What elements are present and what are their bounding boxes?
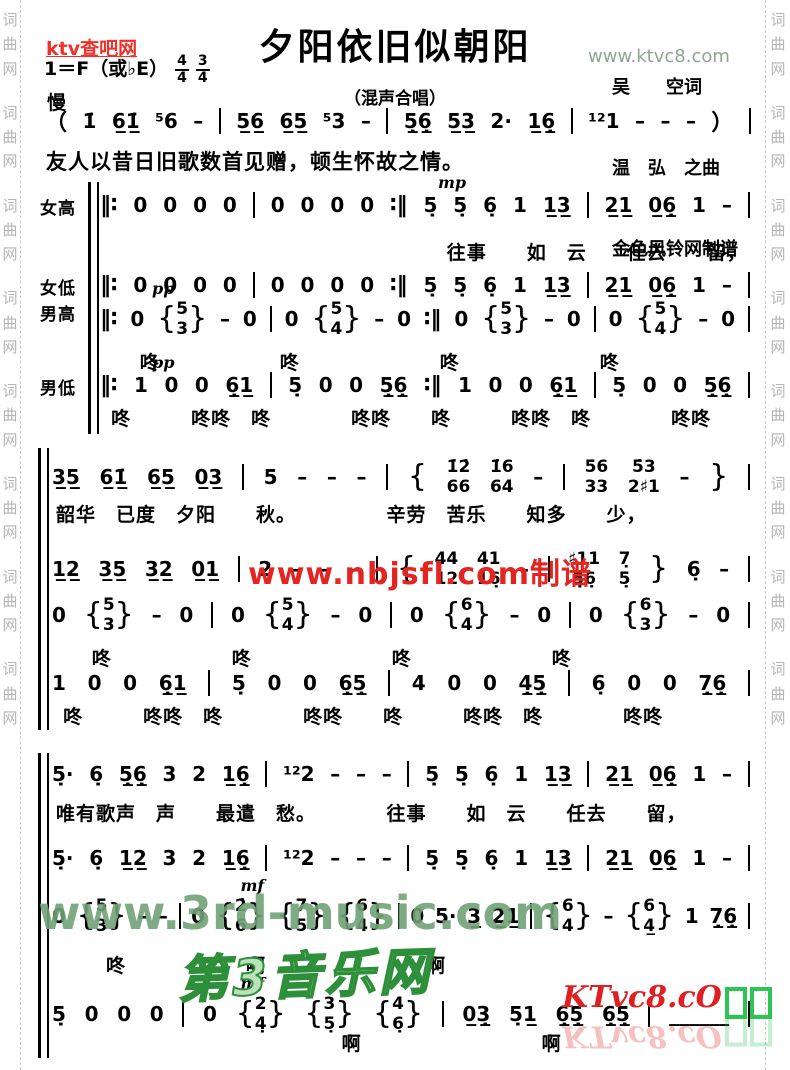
strip-char: 词 [770, 567, 785, 587]
note: 0 [488, 373, 502, 397]
note: 2 [192, 762, 206, 786]
note: 1 [692, 846, 706, 870]
note: 5̣ [423, 273, 437, 297]
note: – [158, 904, 168, 928]
note: 6̣ [485, 762, 499, 786]
note: – [603, 904, 613, 928]
barline [648, 1001, 650, 1027]
barline [748, 1001, 750, 1027]
barline [211, 602, 213, 628]
divisi-brace: } [709, 462, 728, 492]
dynamic-mark: pp [152, 279, 174, 298]
note: 4 [412, 671, 426, 695]
note: 5̣· [52, 846, 74, 870]
note: 0 [360, 273, 374, 297]
barline [587, 272, 589, 298]
note: 2̲1̲ [605, 846, 633, 870]
notes-line: 5̣·6̣5̲̣6̲̣321̲6̲̣¹²2–––5̣5̣6̣11̲3̲2̲1̲0… [52, 759, 750, 789]
note: 0 [231, 603, 245, 627]
note: 0 [673, 373, 687, 397]
note: 3 [162, 846, 176, 870]
note: – [319, 557, 329, 581]
note: 2̲1̲ [605, 273, 633, 297]
music-system: 3̲5̲6̲1̲̇6̲5̲0̲3̲5–––{1̇2̇661̇664–56335̇… [38, 448, 752, 730]
note: 6̣ [483, 273, 497, 297]
lyrics-line: 啊 啊 [56, 1029, 750, 1056]
note: – [356, 846, 366, 870]
barline [748, 602, 750, 628]
sheet-music-page: 词曲网词曲网词曲网词曲网词曲网词曲网词曲网词曲网 词曲网词曲网词曲网词曲网词曲网… [0, 0, 790, 1070]
barline [407, 845, 409, 871]
strip-char: 曲 [2, 313, 17, 333]
chord-stack: {64} [543, 896, 593, 937]
strip-char: 词 [2, 474, 17, 494]
lyrics-line: 咚 啊 啊 [56, 951, 750, 978]
barline [594, 306, 596, 332]
note: 2̲1̲ [492, 904, 520, 928]
note: ¹²1 [588, 109, 619, 133]
note: 5̲̣6̲̣ [404, 109, 432, 133]
strip-char: 曲 [770, 498, 785, 518]
note: 0 [358, 603, 372, 627]
note: 5̣ [288, 373, 302, 397]
note: – [291, 557, 301, 581]
note: – [297, 465, 307, 489]
chord-stack: {64} [337, 896, 387, 937]
barline [208, 670, 210, 696]
note: 6̲̣1̲ [159, 671, 187, 695]
note: – [374, 307, 384, 331]
note: 0 [360, 193, 374, 217]
chord-stack: {53} [157, 299, 207, 340]
barline [571, 108, 573, 134]
note: – [220, 307, 230, 331]
note: – [509, 603, 519, 627]
strip-char: 网 [2, 151, 17, 171]
strip-char: 词 [2, 567, 17, 587]
chord-stack: 1̇664 [490, 457, 514, 498]
note: 1 [513, 193, 527, 217]
note: 2 [258, 557, 272, 581]
note: 5̣ [425, 846, 439, 870]
note: 6̲̣5̲̣ [339, 671, 367, 695]
note: 3 [162, 762, 176, 786]
barline [270, 372, 272, 398]
note: 1 [692, 273, 706, 297]
note: 0 [643, 373, 657, 397]
note: 6̲5̲ [279, 109, 307, 133]
note: 0 [271, 193, 285, 217]
note: 7̲̣6̲̣ [709, 904, 737, 928]
strip-char: 网 [2, 522, 17, 542]
barline [530, 903, 532, 929]
note: 6̲̣1̲ [225, 373, 253, 397]
note: – [722, 846, 732, 870]
barline [265, 845, 267, 871]
note: 0 [191, 904, 205, 928]
strip-char: 词 [2, 659, 17, 679]
chord-stack: {75} [276, 896, 326, 937]
barline [386, 108, 388, 134]
note: 1̲3̲ [544, 762, 572, 786]
barline [219, 108, 221, 134]
barline [748, 556, 750, 582]
strip-char: 曲 [770, 591, 785, 611]
note: 0 [303, 671, 317, 695]
note: 0̲1̲ [191, 557, 219, 581]
note: 5̲3̲ [447, 109, 475, 133]
note: 0 [130, 307, 144, 331]
note: 6̲1̲̇ [100, 465, 128, 489]
voice-label: 女低 [40, 274, 84, 299]
barline [568, 670, 570, 696]
note: 0 [609, 307, 623, 331]
barline [587, 845, 589, 871]
note: – [519, 557, 529, 581]
barline [569, 602, 571, 628]
barline [253, 272, 255, 298]
strip-char: 网 [2, 430, 17, 450]
repeat-barline: ∶‖ [390, 273, 407, 298]
voice-label: 男低 [40, 374, 84, 399]
notes-line: 1006̲̣1̲5̣006̲̣5̲̣4004̲̣5̲̣6̣007̲̣6̲̣ [52, 668, 750, 698]
lyrics-line: 咚 咚 咚 咚 [56, 644, 750, 671]
note: 5̣1̲ [509, 1002, 537, 1026]
note: 3̲5̲ [98, 557, 126, 581]
barline [748, 192, 750, 218]
barline [748, 306, 750, 332]
intro-notes-line: （1̇6̲1̲̇⁵6–5̲6̲6̲5̲⁵3–5̲̣6̲̣5̲3̲2·1̲6̲̣¹… [45, 106, 751, 136]
chord-stack: 5633 [585, 457, 609, 498]
note: 0 [179, 603, 193, 627]
barline [748, 272, 750, 298]
note: 5̣ [232, 671, 246, 695]
chord-stack: {63} [621, 595, 671, 636]
repeat-barline: ∶‖ [424, 307, 441, 332]
barline [238, 556, 240, 582]
notes-line: 1̲2̲3̲5̲3̲2̲0̲1̲2–––{44124116̣–♯115̣6̣7̣… [52, 546, 750, 592]
note: 0 [52, 904, 66, 928]
note: 0 [567, 307, 581, 331]
note: 0 [150, 1002, 164, 1026]
note: 6̣ [89, 846, 103, 870]
notes-line: ‖∶00000000∶‖5̣5̣6̣11̲3̲2̲1̲0̲6̲̣1–mp [100, 190, 750, 220]
note: 0 [193, 193, 207, 217]
note: 6̲̣1̲ [549, 373, 577, 397]
note: 1̇ [82, 109, 96, 133]
note: – [660, 109, 670, 133]
strip-char: 网 [770, 615, 785, 635]
barline [442, 1001, 444, 1027]
note: 0 [133, 273, 147, 297]
strip-char: 曲 [2, 220, 17, 240]
strip-char: 曲 [770, 220, 785, 240]
paren: ） [711, 105, 733, 137]
note: 0̲3̲̣ [462, 1002, 490, 1026]
right-watermark-strip: 词曲网词曲网词曲网词曲网词曲网词曲网词曲网词曲网 [765, 0, 790, 1070]
note: 1̲3̲ [544, 846, 572, 870]
barline [748, 670, 750, 696]
note: 1 [514, 762, 528, 786]
note: 6̲1̲̇ [112, 109, 140, 133]
time-signature-1: 44 [175, 54, 189, 85]
strip-char: 网 [770, 522, 785, 542]
note: 5̣ [455, 846, 469, 870]
note: – [330, 762, 340, 786]
note: 0 [716, 603, 730, 627]
note: 5̣ [52, 1002, 66, 1026]
divisi-brace: { [408, 462, 427, 492]
note: – [152, 603, 162, 627]
barline [388, 670, 390, 696]
notes-line: ‖∶1006̲̣1̲5̣005̲̣6̲̣∶‖1006̲̣1̲5̣005̲̣6̲̣… [100, 370, 750, 400]
note: 0 [319, 373, 333, 397]
strip-char: 网 [770, 244, 785, 264]
note: – [679, 465, 689, 489]
strip-char: 网 [2, 615, 17, 635]
note: 0 [117, 1002, 131, 1026]
note: 0̲6̲̣ [648, 273, 676, 297]
chord-stack: {64} [442, 595, 492, 636]
system-barline [38, 448, 49, 730]
strip-char: 网 [2, 244, 17, 264]
note: 0 [301, 193, 315, 217]
note: 5̲̣6̲̣ [119, 762, 147, 786]
note: – [357, 465, 367, 489]
strip-char: 曲 [770, 684, 785, 704]
strip-char: 曲 [2, 591, 17, 611]
note: – [382, 762, 392, 786]
barline [386, 464, 388, 490]
note: 6̲̣5̲̣ [602, 1002, 630, 1026]
note: ¹²2 [283, 846, 314, 870]
note: ⁵6 [155, 109, 178, 133]
note: 0 [193, 273, 207, 297]
strip-char: 曲 [770, 405, 785, 425]
barline [748, 372, 750, 398]
note: 0 [223, 273, 237, 297]
barline [563, 464, 565, 490]
chord-stack: {53} [84, 595, 134, 636]
note: 6̣ [89, 762, 103, 786]
note: 1 [692, 762, 706, 786]
chord-stack: 4412 [435, 549, 459, 590]
note: 0 [88, 671, 102, 695]
chord-stack: {53} [77, 896, 127, 937]
strip-char: 网 [2, 708, 17, 728]
note: – [533, 465, 543, 489]
note: 0 [410, 904, 424, 928]
note: – [348, 557, 358, 581]
repeat-barline: ‖∶ [100, 373, 117, 398]
notes-line: 0{53}–00{54}–00{64}–00{63}–0 [52, 592, 750, 638]
note: 0 [123, 671, 137, 695]
strip-char: 网 [2, 337, 17, 357]
note: 1̲2̲ [119, 846, 147, 870]
dynamic-mark: mf [240, 974, 264, 993]
strip-char: 网 [770, 708, 785, 728]
barline [548, 556, 550, 582]
left-watermark-strip: 词曲网词曲网词曲网词曲网词曲网词曲网词曲网词曲网 [0, 0, 21, 1070]
barline [587, 761, 589, 787]
repeat-barline: ∶‖ [424, 373, 441, 398]
barline [182, 1001, 184, 1027]
composer-credit: 温 弘 之曲 [612, 155, 738, 182]
note: 0 [627, 671, 641, 695]
note: 3̲2̲ [145, 557, 173, 581]
strip-char: 词 [770, 474, 785, 494]
note: – [193, 109, 203, 133]
note: 1̲3̲ [543, 273, 571, 297]
barline [749, 108, 751, 134]
repeat-barline: ‖∶ [100, 193, 117, 218]
note: – [686, 109, 696, 133]
note: 6̲5̲ [147, 465, 175, 489]
note: 0 [589, 603, 603, 627]
note: 0 [271, 273, 285, 297]
note: 1 [458, 373, 472, 397]
strip-char: 词 [770, 196, 785, 216]
divisi-brace: { [397, 554, 416, 584]
dynamic-mark: mf [240, 876, 264, 895]
note: 0 [330, 273, 344, 297]
strip-char: 网 [770, 430, 785, 450]
barline [748, 845, 750, 871]
note: 0 [397, 307, 411, 331]
note: 0̲6̲̣ [649, 846, 677, 870]
note: – [722, 273, 732, 297]
note: 5 [264, 465, 278, 489]
note: 5· [435, 904, 457, 928]
strip-char: 词 [2, 381, 17, 401]
barline [587, 192, 589, 218]
note: 0 [447, 671, 461, 695]
barline [376, 556, 378, 582]
note: 0 [85, 1002, 99, 1026]
strip-char: 词 [770, 288, 785, 308]
music-system: 5̣·6̣5̲̣6̲̣321̲6̲̣¹²2–––5̣5̣6̣11̲3̲2̲1̲0… [38, 753, 752, 1058]
note: – [722, 193, 732, 217]
note: 0̲6̲̣ [649, 762, 677, 786]
strip-char: 曲 [2, 498, 17, 518]
note: 5̣ [423, 193, 437, 217]
key-signature-text: 1＝F（或♭E） [44, 58, 168, 80]
voice-label: 女高 [40, 194, 84, 219]
note: 5̲̣6̲̣ [704, 373, 732, 397]
strip-char: 网 [770, 151, 785, 171]
note: 0 [454, 307, 468, 331]
lyrics-line: 唯有歌声 声 最遣 愁。 往事 如 云 任去 留， [56, 799, 750, 826]
dynamic-mark: mp [438, 173, 466, 192]
system-barline [88, 182, 99, 434]
note: 1̲2̲ [52, 557, 80, 581]
dynamic-mark: pp [152, 353, 174, 372]
note: – [330, 846, 340, 870]
notes-line: 5̣·6̣1̲2̲321̲6̲̣¹²2–––5̣5̣6̣11̲3̲2̲1̲0̲6… [52, 843, 750, 873]
repeat-barline: ∶‖ [390, 193, 407, 218]
note: 0 [195, 373, 209, 397]
repeat-barline: ‖∶ [100, 273, 117, 298]
note: 1 [52, 671, 66, 695]
divisi-brace: } [649, 554, 668, 584]
note: 1 [513, 273, 527, 297]
chord-stack: 7̣5̣ [619, 549, 631, 590]
notes-line: 0{53}––0{2̇6}{75}{64}05·3̲2̲1̲{64}–{64̲}… [52, 893, 750, 939]
note: 2· [490, 109, 512, 133]
strip-char: 词 [2, 196, 17, 216]
note: – [356, 762, 366, 786]
note: 0 [537, 603, 551, 627]
chord-stack: 5̇32♯1 [628, 457, 660, 498]
note: – [688, 603, 698, 627]
note: 0 [301, 273, 315, 297]
barline [265, 761, 267, 787]
strip-char: 词 [770, 659, 785, 679]
music-system: 女高‖∶00000000∶‖5̣5̣6̣11̲3̲2̲1̲0̲6̲̣1–mp往事… [38, 182, 752, 434]
chord-stack: {54} [311, 299, 361, 340]
note: 1̲6̲̣ [527, 109, 555, 133]
note: 6̣ [485, 846, 499, 870]
note: 1̲6̲̣ [222, 846, 250, 870]
note: 0 [223, 193, 237, 217]
note: 0 [133, 193, 147, 217]
note: – [722, 762, 732, 786]
note: 5̣ [453, 193, 467, 217]
note: 1̲6̲̣ [222, 762, 250, 786]
note: 5̲̣6̲̣ [380, 373, 408, 397]
note: 0 [410, 603, 424, 627]
note: – [719, 557, 729, 581]
note: 0̲6̲̣ [648, 193, 676, 217]
chord-stack: ♯115̣6̣ [568, 549, 600, 590]
barline [748, 903, 750, 929]
strip-char: 曲 [2, 127, 17, 147]
time-signature-2: 34 [196, 54, 210, 85]
note: 6̣ [483, 193, 497, 217]
key-signature: 1＝F（或♭E）4434 [44, 54, 210, 85]
note: – [698, 307, 708, 331]
note: 5̣ [612, 373, 626, 397]
note: 0 [243, 307, 257, 331]
note: 5̣ [455, 762, 469, 786]
note: 0 [267, 671, 281, 695]
voice-label: 男高 [40, 300, 84, 325]
note: 3̲5̲ [52, 465, 80, 489]
note: 6̣ [687, 557, 701, 581]
note: 7̲̣6̲̣ [698, 671, 726, 695]
lyrics-line: 往事 如 云 任去 留， [104, 238, 750, 265]
barline [407, 761, 409, 787]
chord-stack: {54} [263, 595, 313, 636]
note: 5̣ [425, 762, 439, 786]
note: 5̲6̲ [236, 109, 264, 133]
lyrics-line: 咚 咚咚 咚 咚咚 咚 咚咚 咚 咚咚 [56, 702, 750, 729]
repeat-barline: ‖∶ [100, 307, 117, 332]
note: 0 [721, 307, 735, 331]
lyricist-credit: 吴 空词 [612, 74, 738, 101]
note: 0 [483, 671, 497, 695]
strip-char: 曲 [770, 127, 785, 147]
note: 0 [663, 671, 677, 695]
note: 5̣ [453, 273, 467, 297]
strip-char: 网 [770, 337, 785, 357]
chord-stack: 4116̣ [477, 549, 501, 590]
note: 1 [692, 193, 706, 217]
strip-char: 曲 [2, 684, 17, 704]
barline [390, 602, 392, 628]
note: – [544, 307, 554, 331]
note: 1 [514, 846, 528, 870]
